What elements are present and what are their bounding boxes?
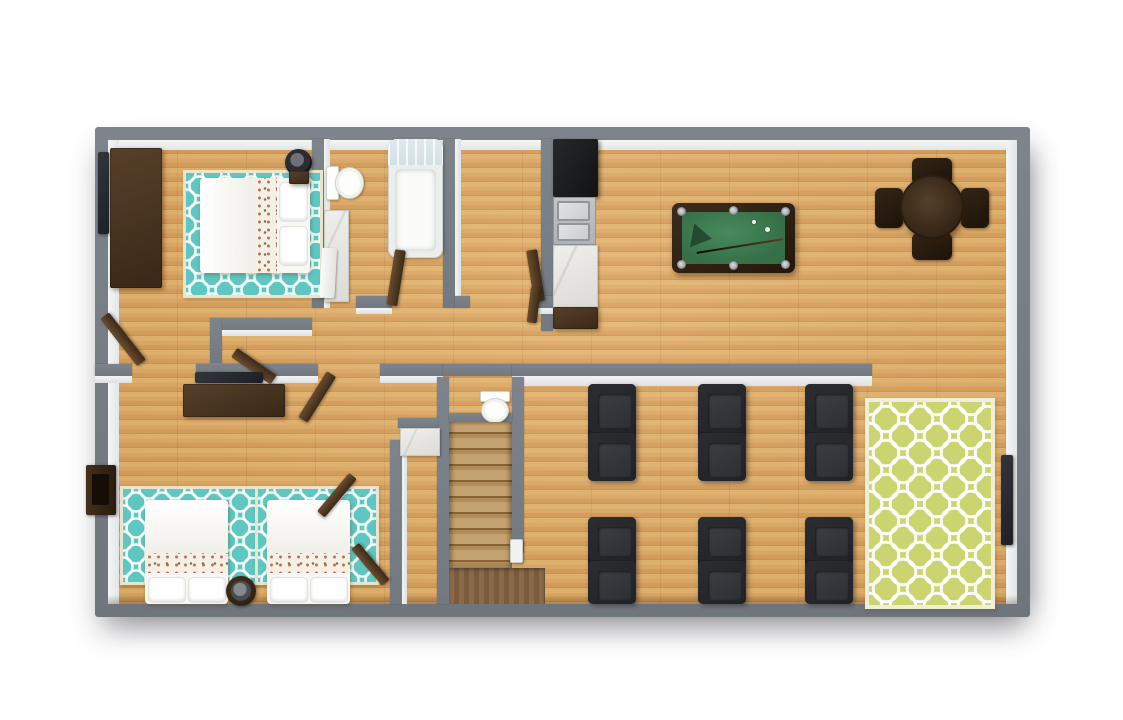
bed-b-pillow-1	[270, 577, 308, 603]
bed-a-duvet	[145, 500, 228, 553]
wall-closet-bottom-a	[455, 296, 470, 308]
bedroom1-bed	[200, 178, 310, 273]
pool-table	[672, 203, 795, 273]
wall-sink-niche-top	[398, 418, 438, 428]
sink-basin-2	[557, 223, 590, 241]
bed-a-band	[145, 553, 228, 573]
wall-powder-top	[443, 364, 512, 376]
pool-pocket-tr	[781, 207, 790, 216]
seat-unit-r1c1	[588, 384, 636, 481]
bedroom1-duvet	[200, 178, 255, 273]
wall-divider-a-face	[95, 376, 132, 383]
kitchen-base-cabinet	[553, 307, 598, 329]
kitchen-marble-counter	[553, 245, 598, 309]
staircase	[449, 422, 512, 568]
wall-bath-closet	[443, 139, 455, 308]
bed-b-band	[267, 553, 350, 573]
wall-bath-bottom-face	[356, 308, 392, 314]
fan-table-top	[231, 581, 251, 601]
wall-stairs-left	[437, 377, 449, 604]
bedroom1-floral-band	[255, 178, 277, 273]
greatroom-wall-tv	[1001, 455, 1013, 545]
pool-pocket-br	[781, 260, 790, 269]
niche-sink	[400, 428, 440, 456]
shower-glass-panel	[388, 139, 443, 165]
object-ball	[752, 220, 756, 224]
floorplan-canvas	[0, 0, 1123, 720]
powder-toilet-bowl	[481, 398, 509, 423]
pool-pocket-tl	[677, 207, 686, 216]
bedroom1-fan-stand	[289, 171, 309, 184]
wall-bed2-closet	[390, 440, 402, 604]
stair-landing	[449, 568, 545, 604]
wall-bath-closet-face	[455, 139, 461, 308]
floorplan	[95, 127, 1030, 617]
seat-unit-r2c3	[805, 517, 853, 604]
bathroom1-shower-tub	[388, 139, 443, 258]
seat-unit-r2c2	[698, 517, 746, 604]
bed-b-pillow-2	[310, 577, 348, 603]
bedroom2-wall-tv	[195, 372, 263, 383]
cue-ball	[765, 227, 770, 232]
bedroom2-bed-b	[267, 500, 350, 604]
bed-b-duvet	[267, 500, 350, 553]
bedside-fan-table	[226, 576, 256, 606]
seat-unit-r1c3	[805, 384, 853, 481]
wall-vestibule-face	[222, 330, 312, 336]
bed-a-pillow-1	[148, 577, 186, 603]
round-dining-table	[900, 175, 964, 239]
bedroom1-dresser	[110, 148, 162, 288]
pool-pocket-bm	[729, 261, 738, 270]
pool-pocket-tm	[729, 206, 738, 215]
wall-vestibule-top	[222, 318, 312, 330]
window-box-inner	[92, 474, 109, 505]
dining-chair-left	[875, 188, 903, 228]
tub-basin	[395, 169, 436, 251]
wall-seating	[512, 364, 872, 376]
wall-stairs-right	[512, 377, 524, 553]
bathroom1-toilet-bowl	[335, 167, 364, 199]
bed-a-pillow-2	[188, 577, 226, 603]
wall-bed2-closet-face	[402, 440, 407, 604]
dining-chair-right	[961, 188, 989, 228]
triangle-rack	[690, 223, 714, 250]
bathroom1-door	[319, 248, 337, 299]
white-newel-post	[510, 539, 523, 563]
bedroom1-wall-tv	[98, 152, 109, 234]
sink-basin-1	[557, 201, 590, 221]
seat-unit-r1c2	[698, 384, 746, 481]
green-trellis-rug	[865, 398, 995, 609]
bedroom1-pillow-2	[279, 226, 308, 266]
wall-divider-c-face	[380, 376, 443, 383]
pool-pocket-bl	[677, 260, 686, 269]
bedroom1-pillow-1	[279, 182, 308, 222]
bedroom2-dresser	[183, 384, 285, 417]
wall-divider-a	[95, 364, 132, 376]
kitchen-sink-counter	[553, 197, 596, 245]
bedroom2-bed-a	[145, 500, 228, 604]
window-box	[86, 465, 116, 515]
wall-divider-c	[380, 364, 443, 376]
wall-vestibule-left	[210, 318, 222, 363]
seat-unit-r2c1	[588, 517, 636, 604]
refrigerator	[553, 139, 598, 197]
